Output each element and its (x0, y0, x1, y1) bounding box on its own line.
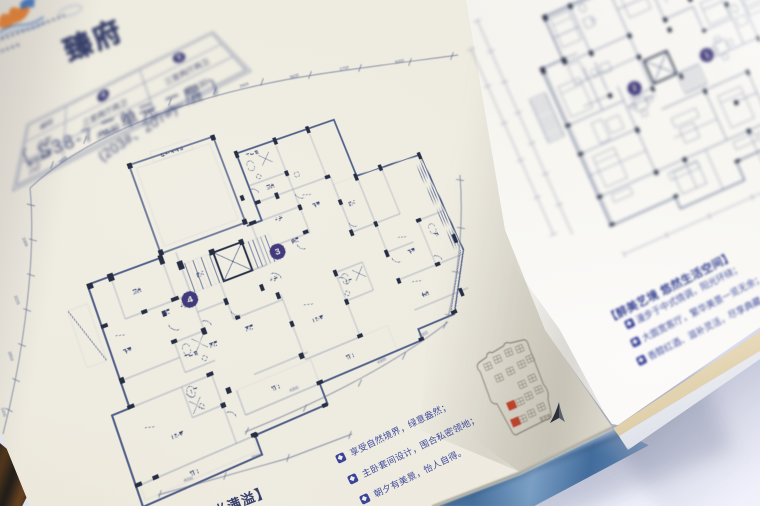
svg-text:4300: 4300 (376, 356, 387, 365)
svg-text:3000: 3000 (394, 58, 405, 65)
svg-text:3600: 3600 (289, 72, 300, 80)
svg-text:2800: 2800 (144, 107, 155, 116)
svg-text:3150: 3150 (191, 91, 202, 99)
svg-text:3300: 3300 (98, 127, 109, 136)
svg-text:4000: 4000 (183, 475, 194, 483)
svg-text:3225: 3225 (13, 295, 21, 306)
svg-text:2750: 2750 (339, 65, 350, 72)
svg-text:3000: 3000 (251, 452, 262, 460)
svg-text:2850: 2850 (7, 351, 15, 362)
svg-text:4300: 4300 (289, 384, 300, 392)
svg-text:3300: 3300 (21, 237, 29, 248)
svg-text:3800: 3800 (58, 155, 69, 165)
